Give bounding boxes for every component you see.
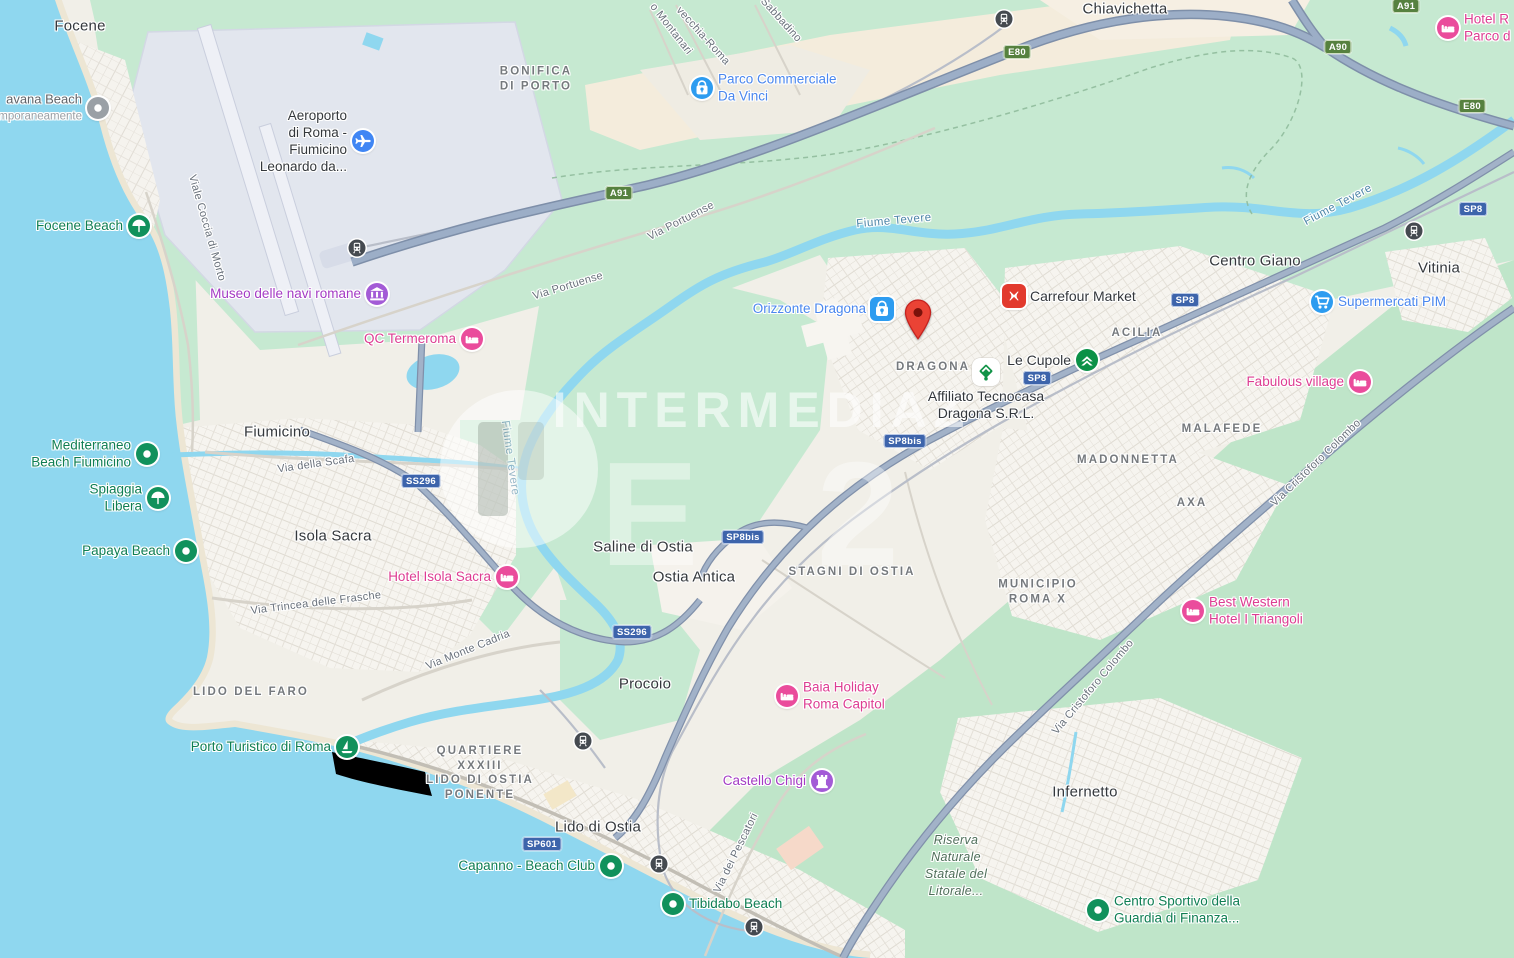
road-shield-e80: E80: [1004, 45, 1031, 59]
plane-icon[interactable]: [352, 130, 374, 152]
locality-label: Saline di Ostia: [593, 539, 693, 556]
dot-icon[interactable]: [662, 893, 684, 915]
locality-label: Infernetto: [1052, 784, 1117, 801]
river-name-label: Fiume Tevere: [856, 212, 932, 231]
poi-label[interactable]: Carrefour Market: [1030, 288, 1136, 305]
poi-label[interactable]: Centro Sportivo dellaGuardia di Finanza.…: [1114, 894, 1240, 927]
train-station-icon[interactable]: [575, 733, 592, 750]
poi-label[interactable]: MediterraneoBeach Fiumicino: [31, 438, 131, 471]
poi-label[interactable]: Baia HolidayRoma Capitol: [803, 680, 885, 713]
locality-label: Focene: [54, 18, 105, 35]
poi-label[interactable]: Focene Beach: [36, 218, 123, 235]
dot-icon[interactable]: [136, 443, 158, 465]
locality-label: Isola Sacra: [294, 528, 371, 545]
poi-label[interactable]: QC Termeroma: [364, 331, 456, 348]
locality-label: Centro Giano: [1209, 253, 1301, 270]
area-label: ACILIA: [1112, 326, 1163, 341]
road-shield-ss296: SS296: [401, 474, 440, 488]
tecnocasa-icon[interactable]: [974, 360, 998, 384]
road-shield-a91: A91: [605, 186, 632, 200]
carrefour-icon[interactable]: [1002, 284, 1026, 308]
train-station-icon[interactable]: [349, 240, 366, 257]
locality-label: Fiumicino: [244, 424, 310, 441]
locality-label: Ostia Antica: [653, 569, 735, 586]
road-name-label: Sabbadino: [758, 0, 804, 45]
poi-label[interactable]: Castello Chigi: [723, 773, 806, 790]
poi-label[interactable]: Porto Turistico di Roma: [191, 739, 331, 756]
road-shield-a91: A91: [1392, 0, 1419, 13]
road-shield-sp8: SP8: [1023, 371, 1051, 385]
road-shield-sp8bis: SP8bis: [884, 434, 926, 448]
bag-icon[interactable]: [870, 297, 894, 321]
labels-layer: FoceneChiavichettaFiumicinoIsola SacraSa…: [0, 0, 1514, 958]
locality-label: Chiavichetta: [1083, 1, 1168, 18]
train-station-icon[interactable]: [1406, 223, 1423, 240]
road-name-label: Via della Scafa: [277, 453, 356, 476]
train-station-icon[interactable]: [651, 856, 668, 873]
area-label: MUNICIPIOROMA X: [998, 578, 1078, 607]
map-marker[interactable]: [903, 298, 933, 342]
road-shield-a90: A90: [1324, 40, 1351, 54]
map-canvas[interactable]: INTERMEDIAZ E2 FoceneChiavichettaFiumici…: [0, 0, 1514, 958]
road-shield-sp8: SP8: [1171, 293, 1199, 307]
area-label: STAGNI DI OSTIA: [788, 565, 915, 580]
road-name-label: Via dei Pescatori: [711, 811, 760, 895]
marina-icon[interactable]: [336, 736, 358, 758]
bed-icon[interactable]: [1182, 600, 1204, 622]
bed-icon[interactable]: [496, 566, 518, 588]
road-name-label: Via Trincea delle Frasche: [250, 589, 382, 617]
cart-icon[interactable]: [1311, 291, 1333, 313]
river-name-label: Fiume Tevere: [499, 420, 521, 496]
bed-icon[interactable]: [1437, 17, 1459, 39]
dot-icon[interactable]: [175, 540, 197, 562]
poi-label[interactable]: Aeroportodi Roma -FiumicinoLeonardo da..…: [260, 107, 347, 175]
poi-label[interactable]: SpiaggiaLibera: [89, 482, 142, 515]
road-name-label: Via Portuense: [646, 199, 716, 243]
road-name-label: Via Monte Cadria: [424, 628, 512, 673]
river-name-label: Fiume Tevere: [1302, 182, 1374, 228]
area-label: MADONNETTA: [1077, 453, 1179, 468]
bed-icon[interactable]: [776, 685, 798, 707]
road-shield-sp601: SP601: [522, 837, 561, 851]
road-shield-sp8bis: SP8bis: [722, 530, 764, 544]
poi-label[interactable]: Tibidabo Beach: [689, 896, 782, 913]
poi-label[interactable]: Capanno - Beach Club: [458, 858, 595, 875]
poi-label[interactable]: Affiliato TecnocasaDragona S.R.L.: [928, 388, 1044, 421]
poi-label[interactable]: Le Cupole: [1007, 352, 1071, 369]
locality-label: Procoio: [619, 676, 671, 693]
area-label: QUARTIEREXXXIIILIDO DI OSTIAPONENTE: [426, 744, 534, 802]
bag-icon[interactable]: [691, 77, 713, 99]
umbrella-icon[interactable]: [128, 215, 150, 237]
area-label: LIDO DEL FARO: [193, 685, 309, 700]
road-shield-sp8: SP8: [1459, 202, 1487, 216]
poi-label[interactable]: Orizzonte Dragona: [753, 301, 866, 318]
road-name-label: Via Cristoforo Colombo: [1050, 637, 1136, 737]
poi-label[interactable]: Hotel RParco d: [1464, 12, 1511, 45]
dot-icon[interactable]: [1087, 899, 1109, 921]
road-name-label: Via Portuense: [531, 270, 604, 303]
bed-icon[interactable]: [1349, 371, 1371, 393]
area-label: DRAGONA: [896, 360, 970, 375]
poi-label[interactable]: Fabulous village: [1246, 374, 1344, 391]
road-name-label: Viale Coccia di Morto: [186, 173, 228, 282]
road-shield-ss296: SS296: [612, 625, 651, 639]
poi-label[interactable]: avana Beachmporaneamente: [0, 92, 82, 125]
area-label: RiservaNaturaleStatale delLitorale...: [925, 832, 987, 900]
dot-icon[interactable]: [87, 97, 109, 119]
area-label: MALAFEDE: [1182, 422, 1263, 437]
poi-label[interactable]: Papaya Beach: [82, 543, 170, 560]
road-shield-e80: E80: [1459, 99, 1486, 113]
poi-label[interactable]: Supermercati PIM: [1338, 294, 1446, 311]
dot-icon[interactable]: [600, 855, 622, 877]
train-station-icon[interactable]: [746, 919, 763, 936]
locality-label: Vitinia: [1418, 260, 1460, 277]
locality-label: Lido di Ostia: [555, 819, 641, 836]
train-station-icon[interactable]: [996, 11, 1013, 28]
umbrella-icon[interactable]: [147, 487, 169, 509]
area-label: BONIFICADI PORTO: [500, 65, 572, 94]
lecupole-icon[interactable]: [1076, 349, 1098, 371]
road-name-label: Via Cristoforo Colombo: [1269, 417, 1364, 509]
poi-label[interactable]: Hotel Isola Sacra: [388, 569, 491, 586]
poi-label[interactable]: Museo delle navi romane: [210, 286, 361, 303]
poi-label[interactable]: Best WesternHotel I Triangoli: [1209, 595, 1303, 628]
poi-label[interactable]: Parco CommercialeDa Vinci: [718, 72, 837, 105]
bed-icon[interactable]: [461, 328, 483, 350]
area-label: AXA: [1177, 496, 1208, 511]
museum-icon[interactable]: [366, 283, 388, 305]
castle-icon[interactable]: [811, 770, 833, 792]
